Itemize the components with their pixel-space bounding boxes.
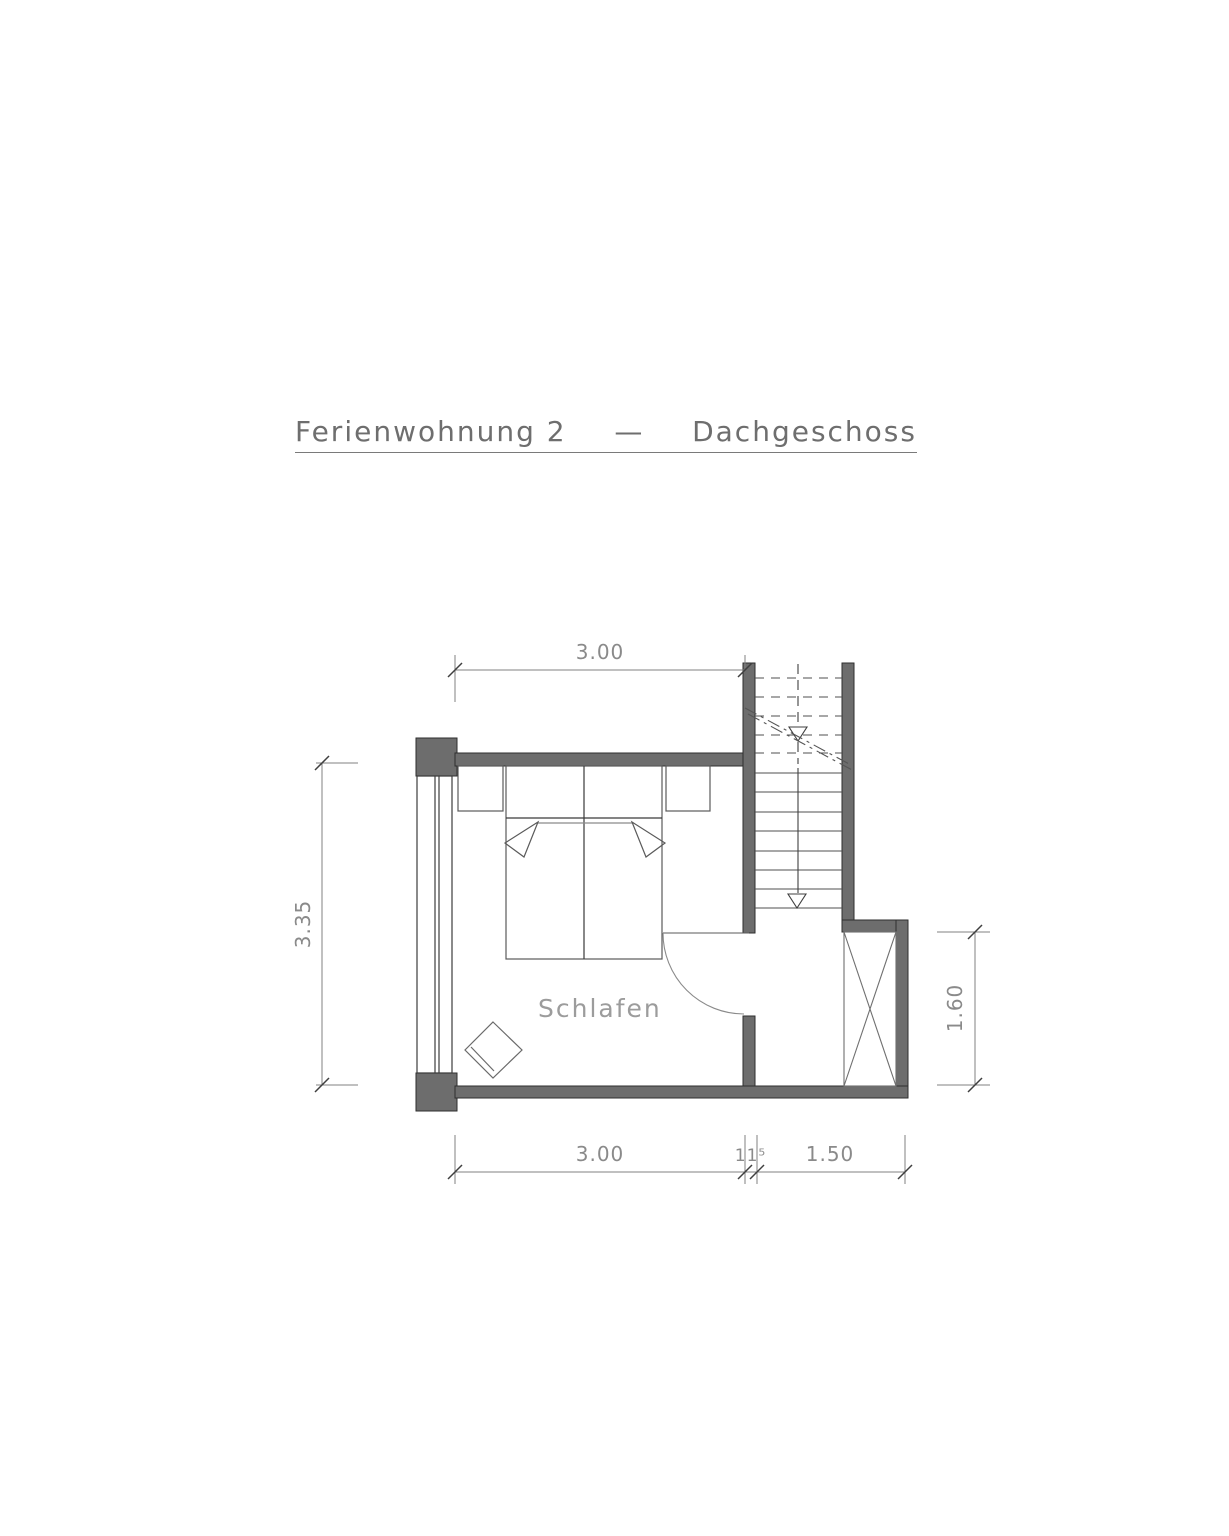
- corner-post-bottom-left: [416, 1073, 457, 1111]
- stair-walk-line: [788, 664, 807, 908]
- walk-arrow-lower-icon: [788, 894, 806, 908]
- shaft-x-box: [844, 932, 896, 1086]
- wall-door-stub: [743, 1016, 755, 1086]
- floor-plan-canvas: Ferienwohnung 2 — Dachgeschoss Schlafen …: [0, 0, 1229, 1536]
- title-part2: Dachgeschoss: [692, 415, 917, 448]
- floor-plan-drawing: [0, 0, 1229, 1536]
- door: [663, 933, 749, 1014]
- title-part1: Ferienwohnung 2: [295, 415, 567, 448]
- dim-label-left-height: 3.35: [289, 884, 317, 964]
- wall-stair-left: [743, 663, 755, 933]
- armchair-diamond: [465, 1022, 522, 1078]
- wall-stair-right: [842, 663, 854, 920]
- title-separator: —: [614, 415, 644, 448]
- wall-right: [896, 920, 908, 1098]
- nightstand-right: [666, 766, 710, 811]
- room-label-bedroom: Schlafen: [538, 994, 658, 1023]
- dim-label-bottom-wall-thickness: 11⁵: [723, 1142, 778, 1170]
- wall-top: [455, 753, 755, 766]
- nightstand-left: [458, 766, 503, 811]
- corner-post-top-left: [416, 738, 457, 776]
- wall-bottom: [455, 1086, 908, 1098]
- pillow-left: [505, 822, 538, 857]
- staircase: [745, 664, 854, 908]
- dim-label-bottom-hall-width: 1.50: [790, 1140, 870, 1168]
- dimension-left: [315, 756, 358, 1092]
- bed-group: [458, 766, 710, 959]
- pillow-right: [632, 822, 665, 857]
- window-left: [417, 776, 452, 1073]
- dim-label-bottom-room-width: 3.00: [560, 1140, 640, 1168]
- drawing-title: Ferienwohnung 2 — Dachgeschoss: [295, 408, 917, 453]
- door-swing-arc: [663, 933, 744, 1014]
- walk-arrow-upper-icon: [789, 727, 807, 741]
- dim-label-right-height: 1.60: [941, 968, 969, 1048]
- dim-label-top-width: 3.00: [560, 638, 640, 666]
